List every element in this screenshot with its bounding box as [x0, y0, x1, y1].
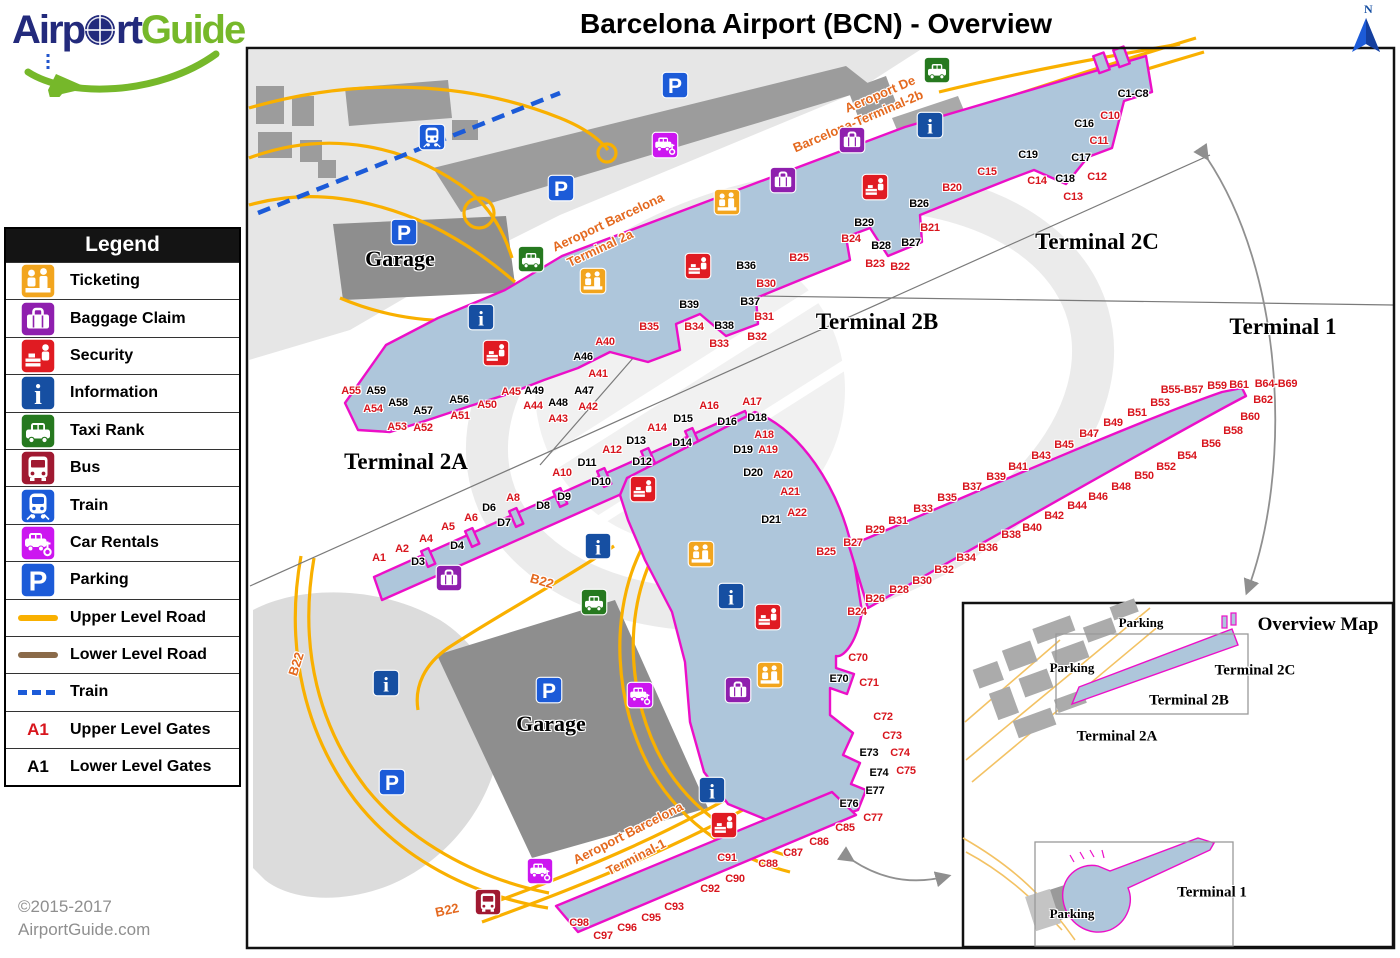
lower-gate-sample: A1 — [27, 757, 49, 777]
legend-row-car-rental: Car Rentals — [6, 524, 239, 561]
legend-item-label: Lower Level Gates — [70, 758, 211, 776]
copyright-site: AirportGuide.com — [18, 919, 150, 942]
legend-item-label: Car Rentals — [70, 534, 159, 552]
legend-item-label: Lower Level Road — [70, 646, 207, 664]
globe-icon — [85, 15, 115, 45]
train-icon — [20, 488, 56, 524]
bus-icon — [20, 450, 56, 486]
page-title: Barcelona Airport (BCN) - Overview — [580, 8, 1052, 40]
lower-road-swatch — [18, 652, 58, 658]
copyright: ©2015-2017 AirportGuide.com — [18, 896, 150, 942]
information-icon — [20, 375, 56, 411]
legend-item-label: Security — [70, 347, 133, 365]
legend-row-upper: A1Upper Level Gates — [6, 711, 239, 748]
copyright-years: ©2015-2017 — [18, 896, 150, 919]
ticketing-icon — [20, 263, 56, 299]
legend-item-label: Upper Level Gates — [70, 721, 211, 739]
legend-item-label: Train — [70, 683, 108, 701]
legend-row-parking: Parking — [6, 561, 239, 598]
legend-row-upper-road: Upper Level Road — [6, 599, 239, 636]
legend-item-label: Baggage Claim — [70, 310, 186, 328]
legend-row-train: Train — [6, 486, 239, 523]
legend-row-lower-road: Lower Level Road — [6, 636, 239, 673]
train-line-swatch — [18, 690, 58, 695]
legend-row-train-line: Train — [6, 673, 239, 710]
legend-item-label: Ticketing — [70, 272, 140, 290]
legend-row-bus: Bus — [6, 449, 239, 486]
legend-row-security: Security — [6, 337, 239, 374]
upper-road-swatch — [18, 615, 58, 621]
car-rental-icon — [20, 525, 56, 561]
logo-airport-text-1: Airp — [12, 8, 84, 52]
legend-item-label: Upper Level Road — [70, 609, 206, 627]
legend-row-information: Information — [6, 374, 239, 411]
legend-row-ticketing: Ticketing — [6, 262, 239, 299]
legend-item-label: Taxi Rank — [70, 422, 144, 440]
legend-row-lower: A1Lower Level Gates — [6, 748, 239, 785]
legend-item-label: Bus — [70, 459, 100, 477]
parking-icon — [20, 562, 56, 598]
logo-guide-text: Guide — [141, 8, 244, 52]
airport-map-page: i — [0, 0, 1400, 958]
baggage-icon — [20, 301, 56, 337]
airportguide-logo[interactable]: AirprtGuide — [8, 2, 248, 97]
legend-title: Legend — [6, 229, 239, 262]
compass: N — [1340, 2, 1396, 58]
inset-overview-map — [963, 593, 1393, 947]
taxi-icon — [20, 413, 56, 449]
logo-airport-text-2: rt — [116, 8, 141, 52]
security-icon — [20, 338, 56, 374]
legend: Legend TicketingBaggage ClaimSecurityInf… — [4, 227, 241, 787]
legend-rows: TicketingBaggage ClaimSecurityInformatio… — [6, 262, 239, 785]
compass-n-label: N — [1364, 2, 1373, 17]
legend-row-baggage: Baggage Claim — [6, 299, 239, 336]
legend-item-label: Parking — [70, 571, 129, 589]
upper-gate-sample: A1 — [27, 720, 49, 740]
legend-item-label: Information — [70, 384, 158, 402]
legend-row-taxi: Taxi Rank — [6, 412, 239, 449]
legend-item-label: Train — [70, 497, 108, 515]
